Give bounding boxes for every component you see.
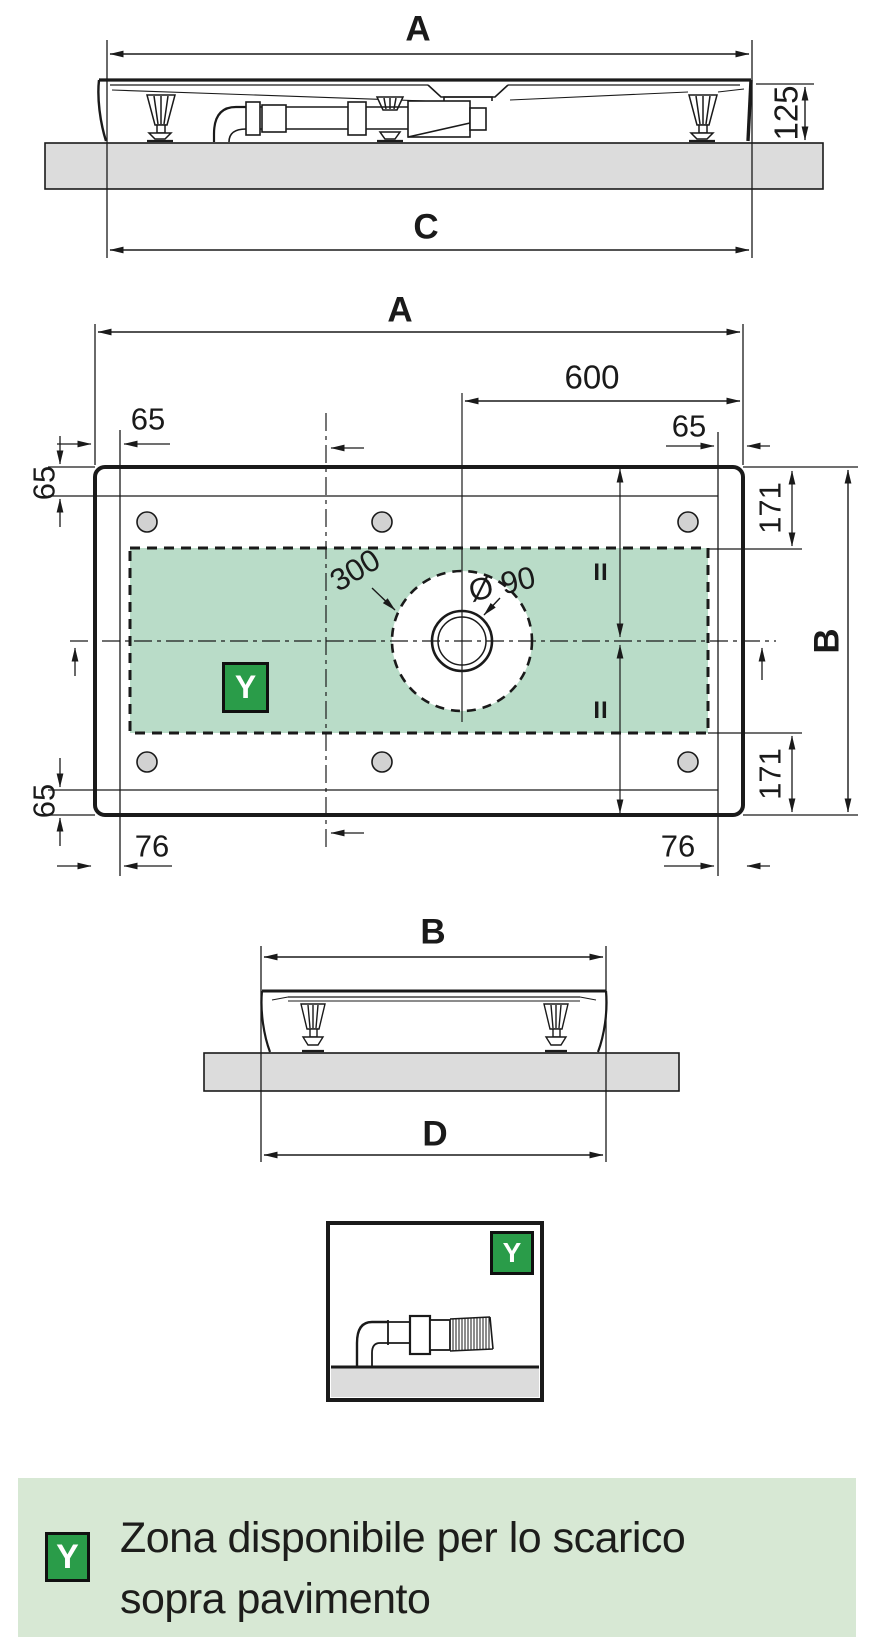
- trap-assembly: [214, 97, 492, 142]
- dim-label-171-top: 171: [755, 482, 786, 534]
- tray-left-edge: [98, 80, 106, 141]
- legend-y-badge: Y: [45, 1532, 90, 1582]
- floor-slab-side: [204, 1053, 679, 1091]
- dim-label-d: D: [422, 1117, 447, 1152]
- dim-label-b-plan: B: [810, 628, 845, 653]
- drain-recess: [428, 85, 508, 97]
- dim-label-65-top-right: 65: [672, 411, 706, 442]
- legend-text-line2: sopra pavimento: [120, 1569, 685, 1630]
- tray-underside: [112, 89, 744, 101]
- leg-side-left: [301, 1004, 325, 1051]
- plan-view: [48, 324, 858, 876]
- tray-right-edge-side: [598, 991, 607, 1052]
- installation-drawing-sheet: A 125 C A 600 65 65 65 65 171 171 B 76 7…: [0, 0, 874, 1650]
- drawing-linework: [0, 0, 874, 1650]
- dim-label-a-front: A: [405, 12, 430, 47]
- dim-label-76-right: 76: [661, 831, 695, 862]
- dim-label-76-left: 76: [135, 831, 169, 862]
- leg-left: [147, 95, 175, 141]
- zone-y-badge-plan: Y: [222, 662, 269, 713]
- extension-lines-a-plan: [95, 324, 743, 465]
- detail-y-badge: Y: [490, 1231, 534, 1275]
- dim-label-65-left-top: 65: [29, 466, 60, 500]
- detail-floor: [331, 1367, 539, 1397]
- dim-label-171-bottom: 171: [755, 748, 786, 800]
- leg-middle: [377, 97, 403, 141]
- floor-slab: [45, 143, 823, 189]
- trap-body: [408, 101, 470, 137]
- dim-label-65-top-left: 65: [131, 404, 165, 435]
- dim-label-600: 600: [564, 361, 619, 394]
- tray-left-edge-side: [261, 991, 270, 1052]
- dim-label-a-plan: A: [387, 293, 412, 328]
- zone-y-badge-plan-label: Y: [235, 669, 256, 706]
- dim-label-125: 125: [770, 85, 803, 140]
- tray-right-edge: [748, 80, 751, 141]
- dim-label-b-side: B: [420, 915, 445, 950]
- legend-y-badge-label: Y: [56, 1538, 79, 1577]
- detail-y-badge-label: Y: [503, 1237, 522, 1269]
- legend-text-line1: Zona disponibile per lo scarico: [120, 1508, 685, 1569]
- dim-label-c: C: [413, 210, 438, 245]
- leg-side-right: [544, 1004, 568, 1051]
- equal-mark-bottom: II: [593, 699, 608, 723]
- dim-label-65-left-bottom: 65: [29, 784, 60, 818]
- legend-text: Zona disponibile per lo scarico sopra pa…: [120, 1508, 685, 1630]
- leg-right: [689, 95, 717, 141]
- equal-mark-top: II: [593, 561, 608, 585]
